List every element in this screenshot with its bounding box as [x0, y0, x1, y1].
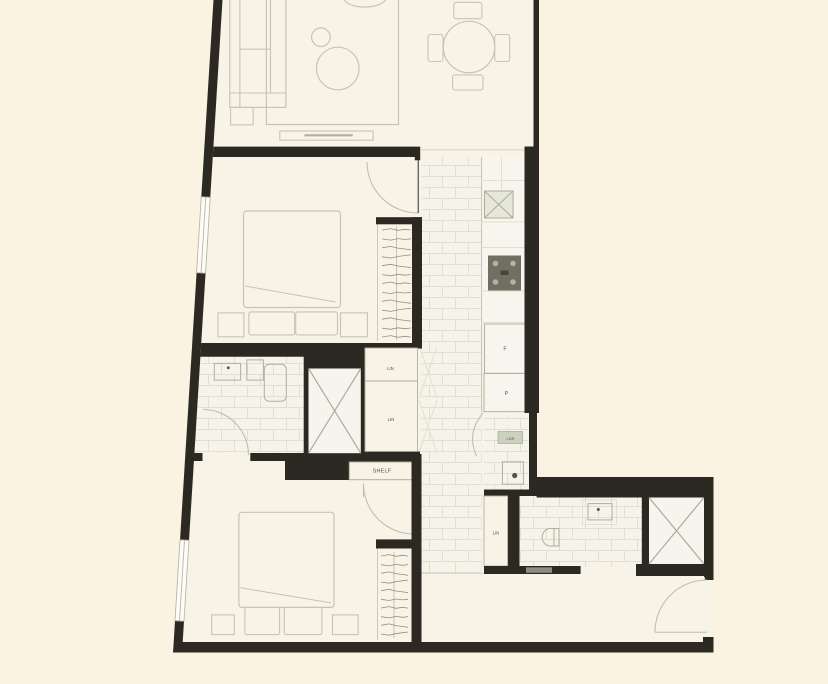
svg-text:P: P [505, 391, 509, 397]
svg-text:SHELF: SHELF [373, 469, 392, 475]
svg-text:LIN: LIN [493, 531, 500, 536]
svg-text:LIN: LIN [387, 366, 394, 371]
svg-text:LIN: LIN [388, 417, 395, 422]
svg-text:LDR: LDR [506, 436, 514, 441]
